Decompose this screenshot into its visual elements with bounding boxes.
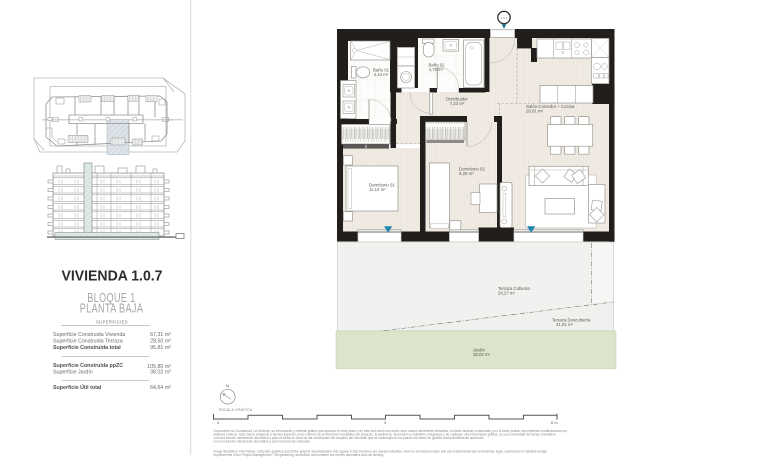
svg-text:28,01 m²: 28,01 m² [526, 109, 544, 114]
svg-text:64,64 m²: 64,64 m² [150, 385, 171, 391]
svg-text:Superficie Jardín: Superficie Jardín [53, 369, 93, 375]
svg-text:Superficie Útil total: Superficie Útil total [53, 384, 102, 391]
svg-text:PLANTA BAJA: PLANTA BAJA [80, 302, 144, 316]
svg-text:SUPERFICIES: SUPERFICIES [96, 319, 128, 324]
svg-text:38,02 m²: 38,02 m² [150, 369, 171, 375]
svg-text:24,27 m²: 24,27 m² [498, 291, 516, 296]
svg-text:41,01 m²: 41,01 m² [556, 322, 574, 327]
svg-text:Superficie Construida ppZC: Superficie Construida ppZC [53, 363, 123, 369]
svg-text:11,14 m²: 11,14 m² [369, 187, 386, 192]
svg-text:7,23 m²: 7,23 m² [450, 101, 465, 106]
svg-text:Superficie Construida Vivienda: Superficie Construida Vivienda [53, 332, 125, 338]
svg-text:6 m: 6 m [551, 420, 558, 425]
svg-text:67,31 m²: 67,31 m² [150, 332, 171, 338]
svg-text:38,02 m²: 38,02 m² [473, 352, 491, 357]
svg-text:Superficie Construida Terraza: Superficie Construida Terraza [53, 339, 123, 345]
svg-text:9,25 m²: 9,25 m² [459, 171, 474, 176]
svg-text:ESCALA GRÁFICA: ESCALA GRÁFICA [219, 408, 253, 412]
svg-text:Superficie Construida total: Superficie Construida total [53, 345, 121, 351]
svg-text:con una función meramente deco: con una función meramente decorativa y p… [214, 439, 311, 443]
svg-text:1.0.7: 1.0.7 [501, 16, 508, 20]
svg-text:VIVIENDA 1.0.7: VIVIENDA 1.0.7 [62, 268, 163, 284]
svg-text:N: N [226, 384, 229, 389]
svg-text:4,75 m²: 4,75 m² [429, 67, 444, 72]
svg-text:requirements of the Project Ma: requirements of the Project Management. … [214, 453, 385, 457]
svg-text:28,50 m²: 28,50 m² [150, 339, 171, 345]
svg-text:4,44 m²: 4,44 m² [374, 72, 389, 77]
svg-text:95,81 m²: 95,81 m² [150, 345, 171, 351]
